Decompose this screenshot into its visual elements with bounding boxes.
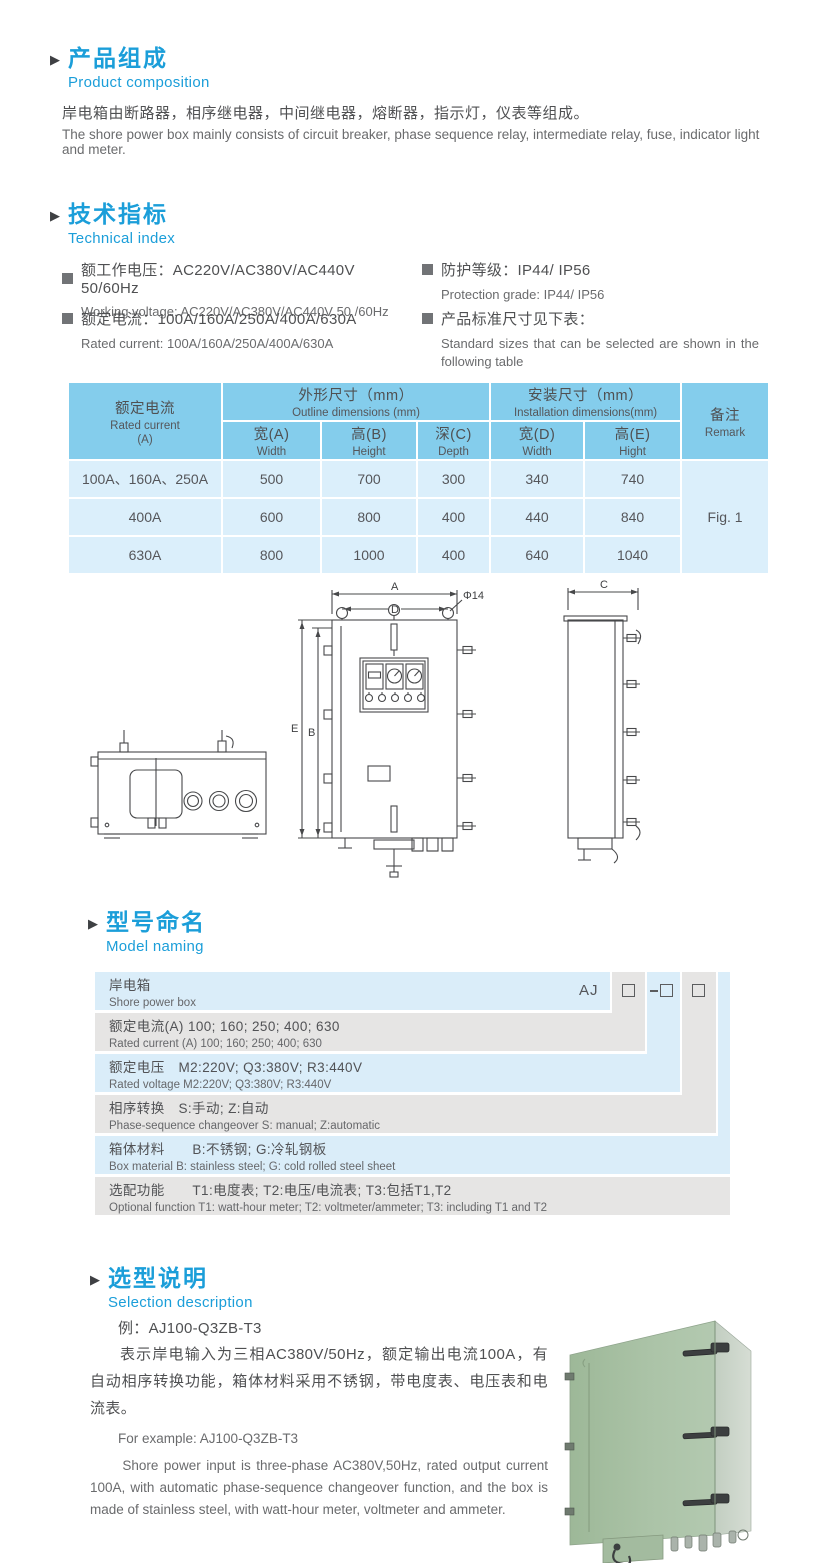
naming-title-en: Model naming [106,938,206,955]
header-outline-dimensions: 外形尺寸（mm） Outline dimensions (mm) [223,383,489,420]
technical-title-en: Technical index [68,230,175,247]
selection-title-en: Selection description [108,1294,253,1311]
selection-example-en: For example: AJ100-Q3ZB-T3 [118,1431,298,1446]
svg-text:A: A [391,581,399,593]
header-installation-dimensions: 安装尺寸（mm） Installation dimensions(mm) [491,383,680,420]
header-depth-c: 深(C)Depth [418,422,489,459]
composition-title-en: Product composition [68,74,210,91]
selection-example-zh: 例：AJ100-Q3ZB-T3 [118,1317,262,1338]
section-arrow-icon: ▶ [90,1273,100,1286]
svg-text:E: E [291,723,298,735]
bullet-square-icon [422,313,433,324]
section-arrow-icon: ▶ [88,917,98,930]
table-row: 630A 800 1000 400 640 1040 [69,537,768,573]
composition-title-zh: 产品组成 [68,46,210,71]
header-rated-current: 额定电流 Rated current (A) [69,383,221,459]
header-height-b: 高(B)Height [322,422,416,459]
catalog-page: ▶ 产品组成 Product composition 岸电箱由断路器，相序继电器… [0,0,830,1568]
product-photo-cabinet [545,1295,805,1563]
svg-text:D: D [391,604,399,616]
svg-text:C: C [600,580,608,591]
section-technical-header: ▶ 技术指标 Technical index [50,202,175,247]
composition-body-zh: 岸电箱由断路器，相序继电器，中间继电器，熔断器，指示灯，仪表等组成。 [62,102,762,123]
svg-text:Φ14: Φ14 [463,590,484,602]
selection-body-en: Shore power input is three-phase AC380V,… [90,1455,548,1521]
header-remark: 备注 Remark [682,383,768,459]
spec-standard-sizes: 产品标准尺寸见下表： Standard sizes that can be se… [422,308,752,371]
code-dash-icon [650,990,658,992]
section-selection-header: ▶ 选型说明 Selection description [90,1266,253,1311]
selection-title-zh: 选型说明 [108,1266,253,1291]
dimensions-table: 额定电流 Rated current (A) 外形尺寸（mm） Outline … [67,381,770,575]
bullet-square-icon [62,313,73,324]
code-box-current-icon [622,984,635,997]
section-arrow-icon: ▶ [50,209,60,222]
technical-drawing: A D Φ14 E B [60,580,790,895]
cell-current: 100A、160A、250A [69,461,221,497]
svg-text:B: B [308,727,315,739]
model-naming-diagram: 岸电箱Shore power box 额定电流(A) 100; 160; 250… [95,972,730,1215]
table-row: 400A 600 800 400 440 840 [69,499,768,535]
cell-remark: Fig. 1 [682,461,768,573]
section-arrow-icon: ▶ [50,53,60,66]
code-box-suffix-icon [692,984,705,997]
composition-body-en: The shore power box mainly consists of c… [62,127,782,157]
section-composition-header: ▶ 产品组成 Product composition [50,46,210,91]
model-code-prefix: AJ [579,982,599,999]
bullet-square-icon [62,273,73,284]
naming-row-phase-sequence: 相序转换 S:手动; Z:自动Phase-sequence changeover… [95,1095,716,1133]
selection-body-zh: 表示岸电输入为三相AC380V/50Hz，额定输出电流100A，有自动相序转换功… [90,1341,548,1422]
header-width-d: 宽(D)Width [491,422,583,459]
code-box-voltage-icon [660,984,673,997]
bullet-square-icon [422,264,433,275]
spec-rated-current: 额定电流：100A/160A/250A/400A/630A Rated curr… [62,308,412,353]
naming-row-shore-power-box: 岸电箱Shore power box [95,972,610,1010]
section-naming-header: ▶ 型号命名 Model naming [88,910,206,955]
naming-row-rated-current: 额定电流(A) 100; 160; 250; 400; 630Rated cur… [95,1013,645,1051]
spec-protection-grade: 防护等级：IP44/ IP56 Protection grade: IP44/ … [422,259,752,304]
naming-title-zh: 型号命名 [106,910,206,935]
table-row: 100A、160A、250A 500 700 300 340 740 Fig. … [69,461,768,497]
header-hight-e: 高(E)Hight [585,422,680,459]
technical-title-zh: 技术指标 [68,202,175,227]
naming-row-optional-function: 选配功能 T1:电度表; T2:电压/电流表; T3:包括T1,T2Option… [95,1177,730,1215]
naming-row-rated-voltage: 额定电压 M2:220V; Q3:380V; R3:440VRated volt… [95,1054,680,1092]
header-width-a: 宽(A)Width [223,422,320,459]
naming-row-box-material: 箱体材料 B:不锈钢; G:冷轧钢板Box material B: stainl… [95,1136,730,1174]
